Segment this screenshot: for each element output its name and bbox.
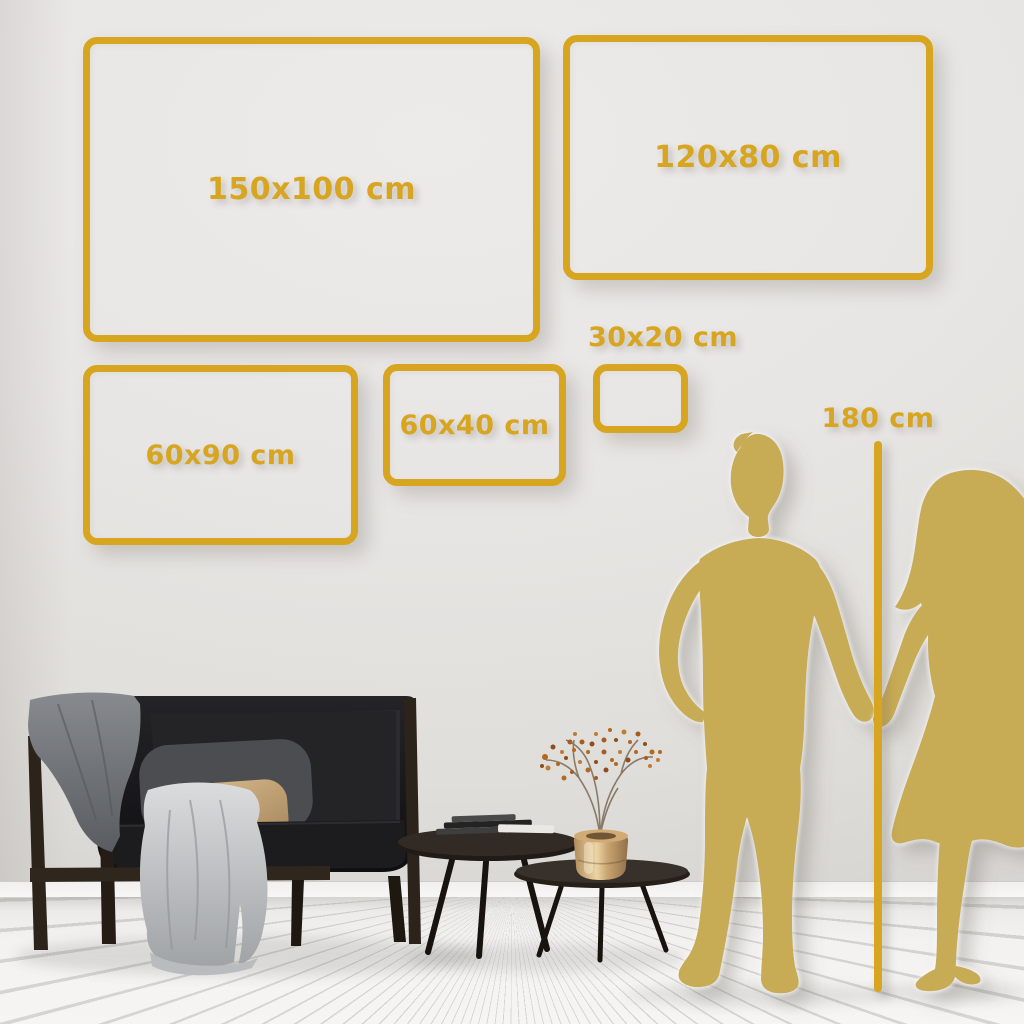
dried-branch: [546, 740, 653, 836]
nesting-coffee-tables: [396, 813, 690, 960]
size-label-60x90: 60x90 cm: [145, 440, 295, 471]
size-frame-30x20: [593, 364, 688, 433]
size-label-150x100: 150x100 cm: [207, 172, 416, 207]
size-frame-60x90: 60x90 cm: [83, 365, 358, 545]
sofa: [28, 693, 421, 976]
brass-vase: [540, 728, 662, 880]
size-label-60x40: 60x40 cm: [399, 410, 549, 441]
man-silhouette: [659, 432, 874, 993]
height-marker-label: 180 cm: [808, 403, 948, 434]
size-frame-150x100: 150x100 cm: [83, 37, 540, 342]
woman-silhouette: [873, 470, 1024, 991]
size-frame-120x80: 120x80 cm: [563, 35, 933, 280]
size-label-30x20: 30x20 cm: [568, 322, 758, 353]
height-marker-line: [874, 441, 882, 992]
size-label-120x80: 120x80 cm: [654, 140, 842, 175]
blossoms: [540, 728, 662, 781]
size-guide-scene: 150x100 cm 120x80 cm 60x90 cm 60x40 cm 3…: [0, 0, 1024, 1024]
size-frame-60x40: 60x40 cm: [383, 364, 566, 486]
